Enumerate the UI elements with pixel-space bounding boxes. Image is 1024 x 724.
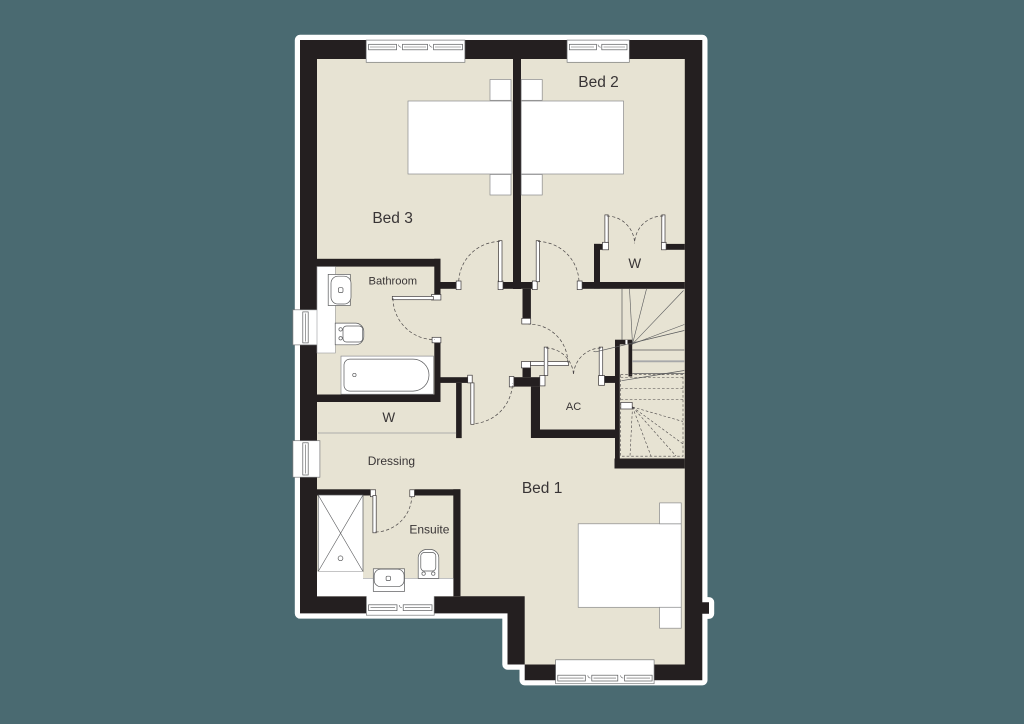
svg-text:AC: AC [566, 401, 581, 413]
svg-text:W: W [628, 256, 641, 271]
svg-text:Dressing: Dressing [368, 454, 415, 468]
svg-text:Bed 2: Bed 2 [578, 74, 619, 91]
svg-text:Ensuite: Ensuite [409, 522, 449, 536]
svg-text:Bed 3: Bed 3 [372, 210, 413, 227]
svg-text:Bed 1: Bed 1 [522, 480, 563, 497]
svg-text:Bathroom: Bathroom [369, 276, 418, 288]
svg-text:W: W [382, 410, 395, 425]
